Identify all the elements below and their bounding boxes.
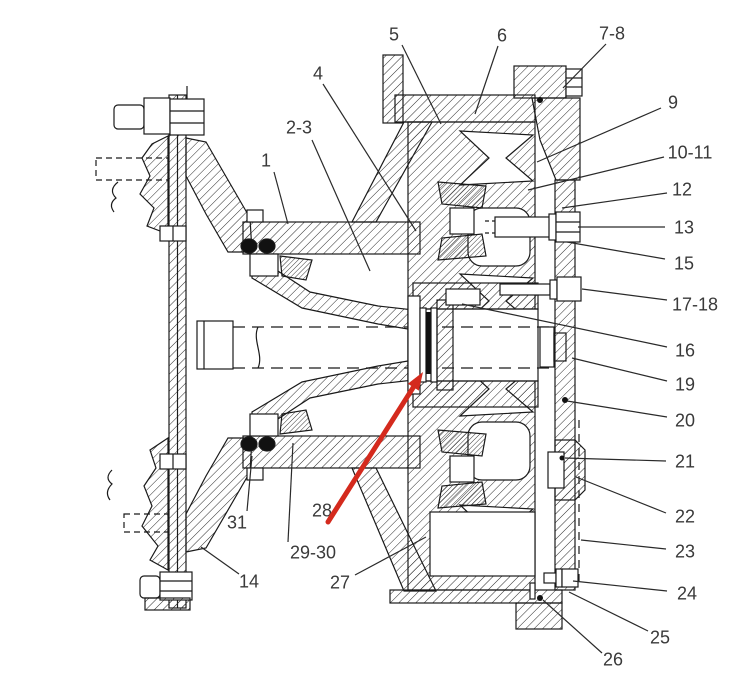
callout-label-12: 12 (672, 179, 692, 199)
retainer-bracket-top (247, 210, 263, 222)
diagram-page: 12-34567-8910-1112131517-181619202122232… (0, 0, 753, 687)
hex-bolt-head (562, 569, 578, 587)
callout-label-25: 25 (650, 627, 670, 647)
set-screw-dot (537, 97, 543, 103)
hex-bolt-head (556, 212, 580, 242)
shaft-break-line (256, 327, 259, 368)
housing-foot (516, 603, 562, 629)
set-screw-dot (560, 456, 565, 461)
bolt-washer (550, 280, 557, 299)
set-screw-dot (537, 595, 543, 601)
bearing-roller-top (280, 256, 312, 280)
callout-label-21: 21 (675, 451, 695, 471)
bearing-spacer-upper (450, 208, 474, 234)
taper-roller (438, 234, 486, 260)
leader-line-12 (562, 193, 667, 208)
bearing-block-top (250, 254, 278, 276)
oring-seal (241, 239, 257, 253)
leader-line-22 (576, 477, 666, 513)
bolt-head (140, 576, 160, 598)
leader-line-24 (573, 581, 667, 591)
bearing-spacer-lower (450, 456, 474, 482)
seal-ring-black (426, 312, 431, 374)
bearing-block-bottom (250, 414, 278, 436)
shaft-left-boss (197, 321, 233, 369)
bottom-bolt-group (140, 572, 192, 600)
bearing-roller-bottom (280, 410, 312, 434)
bolt-shank (495, 217, 555, 237)
callout-label-4: 4 (313, 63, 323, 83)
casting-break-top (140, 136, 168, 234)
dowel-pin (530, 583, 535, 599)
callout-label-14: 14 (239, 571, 259, 591)
bolt-head (114, 105, 144, 129)
callout-label-16: 16 (675, 340, 695, 360)
leader-line-7-8 (563, 44, 606, 88)
leader-line-25 (569, 592, 648, 631)
callout-label-26: 26 (603, 649, 623, 669)
bolt-nut (170, 99, 204, 135)
rim-bar-bottom (390, 590, 562, 603)
bolt-shank (544, 573, 556, 583)
callout-label-29-30: 29-30 (290, 542, 336, 562)
oring-seal (241, 437, 257, 451)
plate-foot (145, 598, 190, 610)
callout-label-17-18: 17-18 (672, 294, 718, 314)
callout-label-13: 13 (674, 217, 694, 237)
leader-line-15 (567, 242, 665, 259)
housing-cavity-lower (430, 512, 535, 576)
housing-wall-lower (186, 438, 252, 552)
oring-seal (259, 239, 275, 253)
callout-label-27: 27 (330, 572, 350, 592)
callout-label-24: 24 (677, 583, 697, 603)
seal-ring (431, 308, 437, 382)
taper-roller (438, 430, 486, 456)
cap-spacer (514, 66, 566, 98)
leader-line-17-18 (582, 289, 667, 300)
bolt-washer (556, 569, 562, 587)
leader-line-20 (567, 401, 667, 417)
taper-roller (438, 482, 486, 508)
leader-line-14 (201, 547, 239, 574)
callout-label-9: 9 (668, 92, 678, 112)
callout-label-5: 5 (389, 24, 399, 44)
hub-sleeve-lower (413, 381, 538, 407)
bolt-washer (144, 98, 170, 134)
oring-seal (259, 437, 275, 451)
bolt-shank (500, 284, 550, 295)
pulley-group (352, 55, 562, 629)
set-screw-dot (562, 397, 568, 403)
leader-line-19 (572, 358, 667, 381)
parts-diagram-canvas: 12-34567-8910-1112131517-181619202122232… (0, 0, 753, 687)
taper-roller (438, 182, 486, 208)
seal-ring (420, 308, 426, 382)
callout-label-31: 31 (227, 512, 247, 532)
callout-label-15: 15 (674, 253, 694, 273)
break-squiggle-bottom (107, 470, 112, 500)
leader-line-23 (581, 540, 666, 549)
callout-label-22: 22 (675, 506, 695, 526)
bolt-washer (549, 214, 556, 240)
callout-label-2-3: 2-3 (286, 117, 312, 137)
callout-label-23: 23 (675, 541, 695, 561)
callout-label-1: 1 (261, 150, 271, 170)
adapter-top (532, 98, 580, 180)
callout-label-6: 6 (497, 25, 507, 45)
callout-label-20: 20 (675, 410, 695, 430)
callout-label-10-11: 10-11 (668, 142, 713, 162)
housing-wall-upper (186, 138, 252, 252)
break-squiggle-top (111, 182, 118, 212)
top-bolt-group (114, 86, 204, 135)
shaft-end-step (540, 327, 554, 367)
rim-bar-top (395, 95, 535, 122)
hex-bolt-head (557, 277, 581, 301)
shaft-nut (446, 289, 480, 305)
leader-line-1 (274, 172, 288, 224)
callout-label-7-8: 7-8 (599, 23, 625, 43)
callout-label-19: 19 (675, 374, 695, 394)
bolt-nut (160, 572, 192, 600)
seal-housing (437, 300, 453, 390)
